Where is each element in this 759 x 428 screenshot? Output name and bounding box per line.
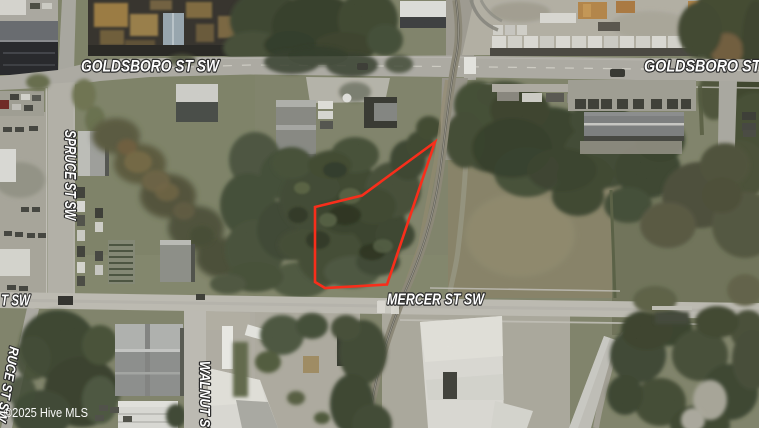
svg-text:SPRUCE ST SW: SPRUCE ST SW: [61, 130, 78, 221]
svg-text:MERCER ST SW: MERCER ST SW: [387, 291, 485, 308]
svg-text:GOLDSBORO ST S: GOLDSBORO ST S: [644, 58, 759, 76]
svg-text:T SW: T SW: [1, 293, 31, 310]
svg-text:WALNUT ST: WALNUT ST: [196, 361, 213, 428]
svg-text:©2025 Hive MLS: ©2025 Hive MLS: [4, 405, 88, 420]
svg-text:GOLDSBORO ST SW: GOLDSBORO ST SW: [81, 58, 220, 76]
